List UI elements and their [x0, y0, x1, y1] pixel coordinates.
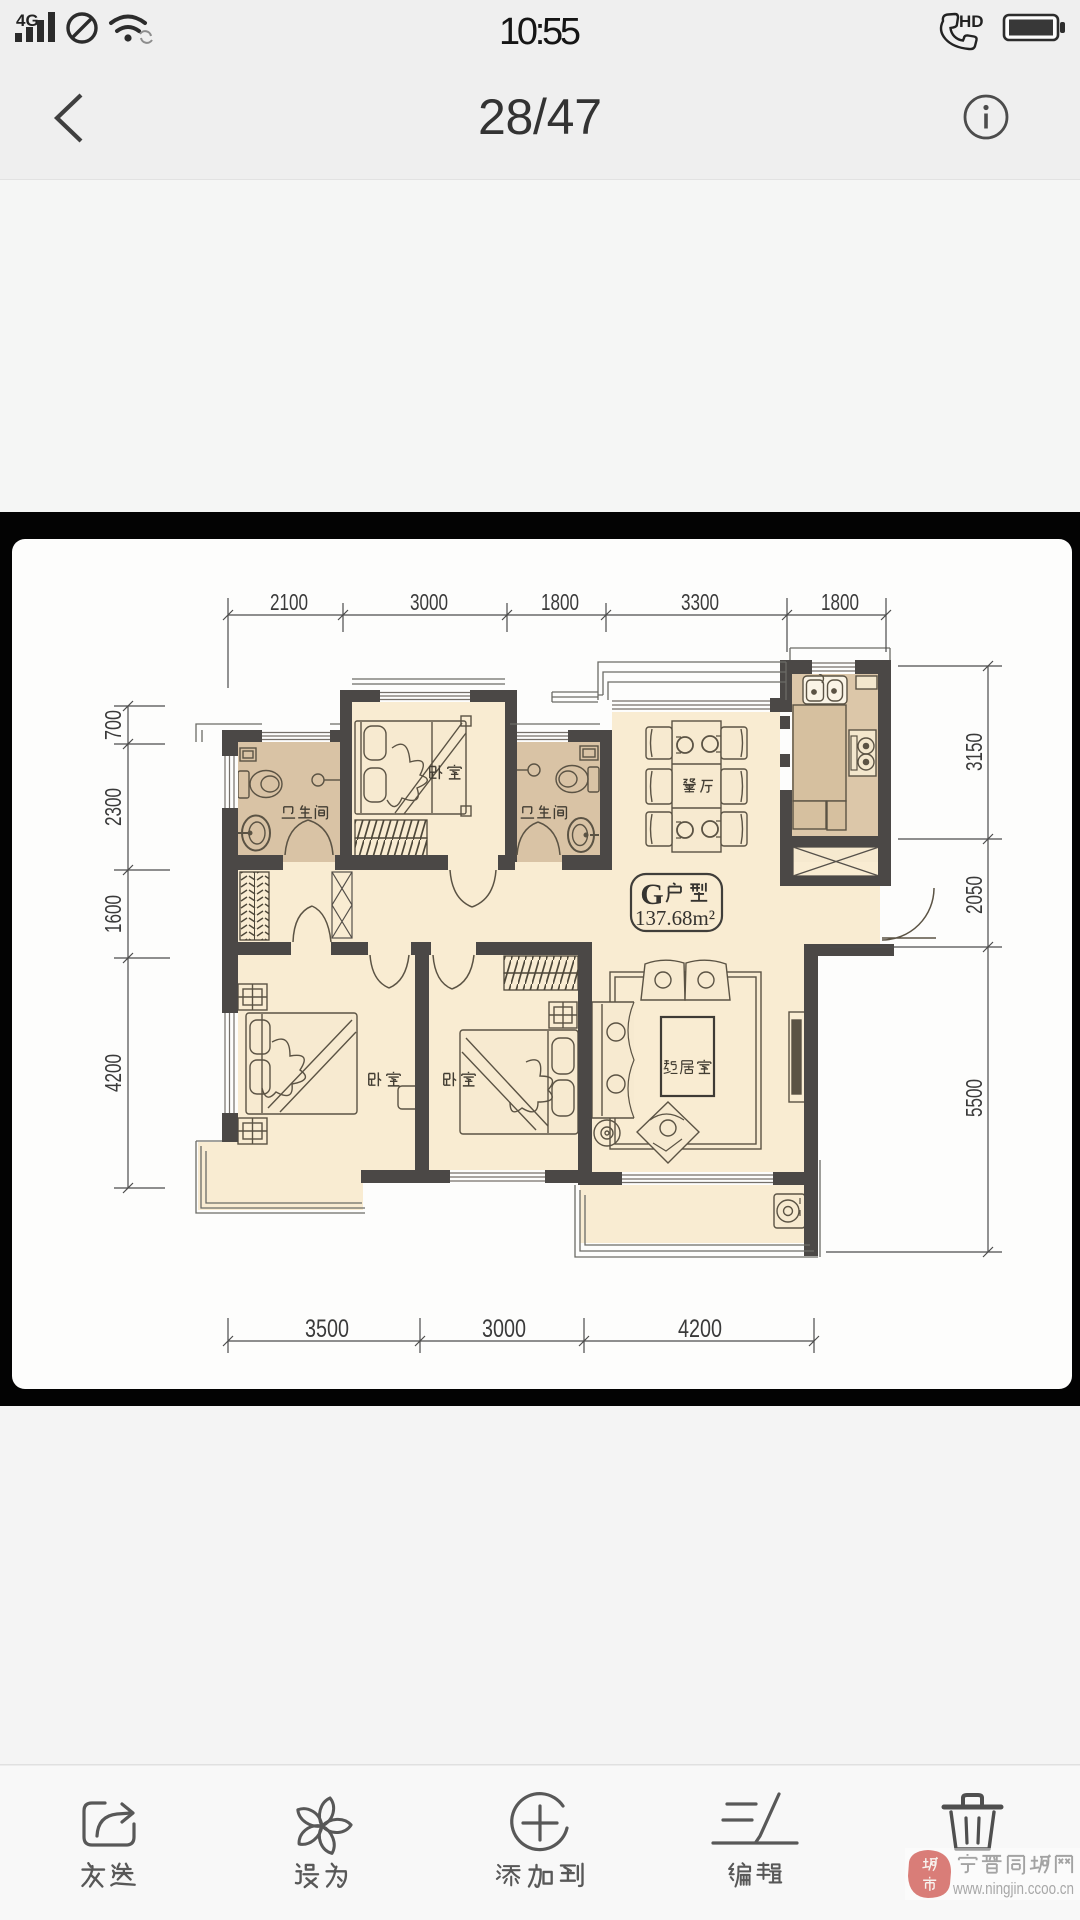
- svg-text:700: 700: [100, 710, 126, 740]
- svg-text:4200: 4200: [678, 1315, 722, 1343]
- svg-text:2100: 2100: [270, 589, 308, 615]
- svg-text:3300: 3300: [681, 589, 719, 615]
- svg-text:10:55: 10:55: [499, 11, 581, 53]
- svg-text:www.ningjin.ccoo.cn: www.ningjin.ccoo.cn: [952, 1879, 1074, 1898]
- svg-text:4200: 4200: [100, 1054, 126, 1092]
- svg-text:137.68m²: 137.68m²: [635, 906, 715, 930]
- svg-text:1800: 1800: [821, 589, 859, 615]
- svg-text:2050: 2050: [961, 876, 987, 914]
- svg-text:5500: 5500: [961, 1079, 987, 1117]
- svg-text:28/47: 28/47: [478, 89, 602, 145]
- svg-text:3000: 3000: [410, 589, 448, 615]
- svg-text:1600: 1600: [100, 895, 126, 933]
- svg-text:HD: HD: [959, 12, 984, 31]
- svg-text:3000: 3000: [482, 1315, 526, 1343]
- svg-text:2300: 2300: [100, 788, 126, 826]
- svg-text:3150: 3150: [961, 733, 987, 771]
- svg-text:1800: 1800: [541, 589, 579, 615]
- svg-text:3500: 3500: [305, 1315, 349, 1343]
